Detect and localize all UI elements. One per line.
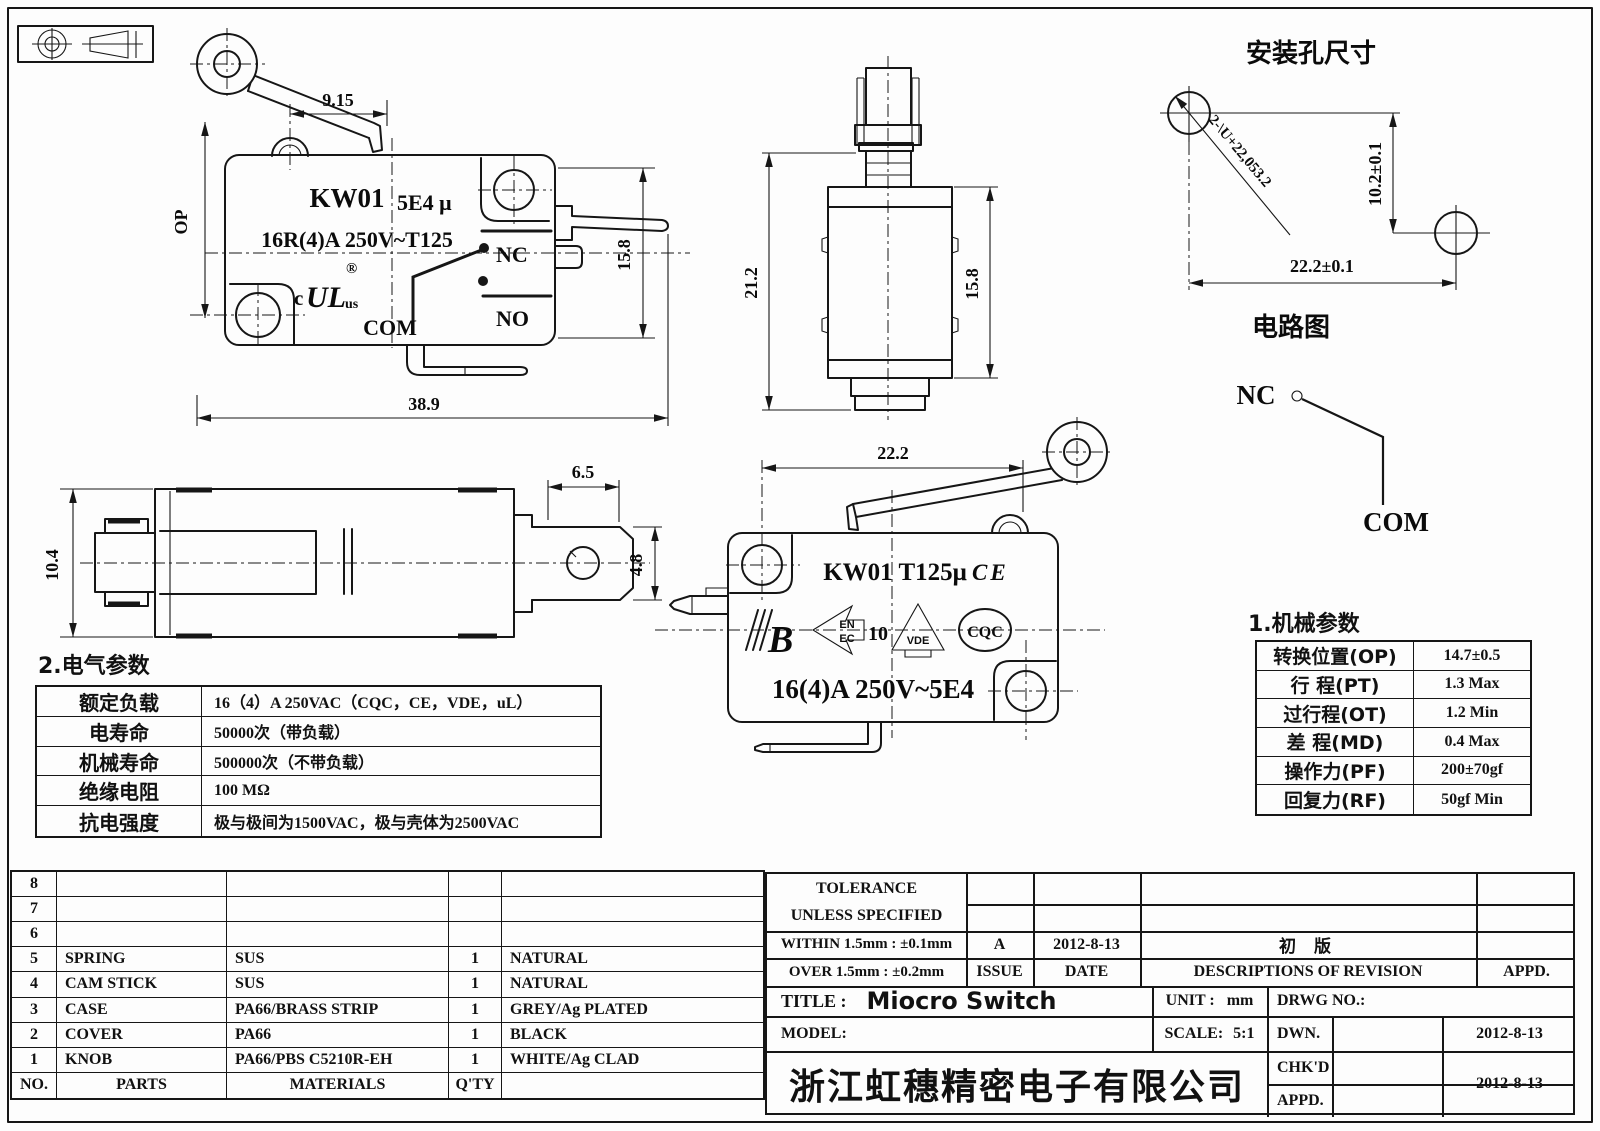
parts-header-no: NO.: [12, 1073, 57, 1098]
mech-value: 1.3 Max: [1414, 671, 1530, 700]
bottom-model-label: KW01 T125μ: [823, 559, 967, 586]
part-material: PA66: [227, 1023, 449, 1048]
tolerance-over: OVER 1.5mm : ±0.2mm: [767, 958, 966, 986]
side-view: KW01 5E4 μ 16R(4)A 250V~T125 ® c UL us C…: [171, 28, 690, 426]
part-material: PA66/PBS C5210R-EH: [227, 1048, 449, 1073]
parts-header-color: [502, 1073, 765, 1098]
front-view: 21.2 15.8: [741, 56, 998, 420]
part-qty: [449, 897, 502, 922]
mech-label: 操作力(PF): [1257, 757, 1414, 786]
title-block: TOLERANCE UNLESS SPECIFIED WITHIN 1.5mm …: [765, 872, 1575, 1115]
dim-6-5: 6.5: [572, 462, 595, 482]
circuit-diagram: 电路图 NC COM: [1237, 312, 1429, 537]
dim-22-2-mount: 22.2±0.1: [1290, 256, 1354, 276]
appd-header: APPD.: [1476, 958, 1577, 986]
nc-label: NC: [496, 242, 528, 267]
dim-38-9: 38.9: [408, 394, 440, 414]
elec-table: 额定负载16（4）A 250VAC（CQC，CE，VDE，uL） 电寿命5000…: [35, 685, 602, 838]
tolerance-label-1: TOLERANCE: [767, 876, 966, 902]
part-no: 6: [12, 922, 57, 947]
unit-value: mm: [1227, 992, 1254, 1010]
mech-label: 转换位置(OP): [1257, 642, 1414, 671]
b-mark-icon: B: [767, 619, 793, 661]
part-qty: [449, 872, 502, 897]
mech-value: 50gf Min: [1414, 785, 1530, 814]
part-material: [227, 897, 449, 922]
drawing-title: Miocro Switch: [867, 987, 1057, 1015]
com-label: COM: [363, 315, 417, 340]
elec-label: 额定负载: [37, 687, 202, 717]
part-no: 3: [12, 998, 57, 1023]
elec-label: 绝缘电阻: [37, 776, 202, 806]
elec-value: 极与极间为1500VAC，极与壳体为2500VAC: [202, 806, 600, 836]
cqc-mark-icon: CQC: [967, 624, 1003, 641]
mech-value: 1.2 Min: [1414, 699, 1530, 728]
part-name: KNOB: [57, 1048, 227, 1073]
vde-mark-icon: VDE: [907, 635, 930, 647]
issue-label: ISSUE: [966, 958, 1033, 986]
dim-21-2: 21.2: [741, 267, 761, 299]
part-color: [502, 897, 765, 922]
part-name: SPRING: [57, 947, 227, 972]
part-no: 8: [12, 872, 57, 897]
parts-table: 8 7 6 5SPRINGSUS1NATURAL 4CAM STICKSUS1N…: [10, 870, 765, 1100]
dim-15-8-front: 15.8: [962, 268, 982, 300]
part-qty: 1: [449, 1023, 502, 1048]
part-qty: [449, 922, 502, 947]
part-color: NATURAL: [502, 947, 765, 972]
appd-label: APPD.: [1277, 1084, 1332, 1117]
elec-value: 500000次（不带负载）: [202, 747, 600, 777]
mounting-hole-diagram: 安装孔尺寸 10.2±0.1 22.2±0.1 2-\U+22,053.2: [1160, 39, 1490, 290]
date-label: DATE: [1033, 958, 1140, 986]
revision-header: DESCRIPTIONS OF REVISION: [1140, 958, 1476, 986]
side-rating-label: 16R(4)A 250V~T125: [261, 227, 453, 252]
drawing-sheet: KW01 5E4 μ 16R(4)A 250V~T125 ® c UL us C…: [0, 0, 1600, 1131]
dwn-date: 2012-8-13: [1442, 1016, 1577, 1051]
part-qty: 1: [449, 972, 502, 997]
part-color: WHITE/Ag CLAD: [502, 1048, 765, 1073]
part-qty: 1: [449, 998, 502, 1023]
elec-value: 50000次（带负载）: [202, 717, 600, 747]
parts-header-materials: MATERIALS: [227, 1073, 449, 1098]
model-label: MODEL:: [781, 1016, 1152, 1051]
chkd-date: 2012-8-13: [1442, 1051, 1577, 1117]
part-no: 1: [12, 1048, 57, 1073]
bottom-rating-label: 16(4)A 250V~5E4: [772, 674, 974, 704]
part-material: [227, 872, 449, 897]
registered-icon: ®: [346, 261, 357, 277]
ce-mark-icon: CE: [972, 560, 1009, 585]
dim-9-15: 9.15: [322, 90, 354, 110]
part-no: 2: [12, 1023, 57, 1048]
dim-10-4: 10.4: [42, 549, 62, 581]
part-color: GREY/Ag PLATED: [502, 998, 765, 1023]
side-model-label: KW01: [309, 183, 384, 213]
part-name: [57, 897, 227, 922]
scale-label: SCALE:: [1164, 1025, 1223, 1043]
elec-value: 100 MΩ: [202, 776, 600, 806]
mech-label: 差 程(MD): [1257, 728, 1414, 757]
mounting-title: 安装孔尺寸: [1246, 39, 1376, 69]
part-material: SUS: [227, 972, 449, 997]
elec-label: 机械寿命: [37, 747, 202, 777]
part-name: CASE: [57, 998, 227, 1023]
part-no: 5: [12, 947, 57, 972]
company-name: 浙江虹穗精密电子有限公司: [767, 1051, 1267, 1117]
dim-10-2: 10.2±0.1: [1365, 142, 1385, 206]
projection-symbol-icon: [18, 26, 153, 62]
issue-value: A: [966, 931, 1033, 958]
part-color: [502, 922, 765, 947]
mech-label: 回复力(RF): [1257, 785, 1414, 814]
circuit-com-label: COM: [1363, 507, 1429, 537]
tolerance-within: WITHIN 1.5mm : ±0.1mm: [767, 931, 966, 958]
dim-op: OP: [171, 209, 191, 234]
part-qty: 1: [449, 1048, 502, 1073]
part-name: CAM STICK: [57, 972, 227, 997]
dwn-label: DWN.: [1277, 1016, 1332, 1051]
dim-15-8-side: 15.8: [614, 239, 634, 271]
circuit-nc-label: NC: [1237, 380, 1276, 410]
mech-value: 14.7±0.5: [1414, 642, 1530, 671]
chkd-label: CHK'D: [1277, 1051, 1332, 1084]
unit-label: UNIT :: [1166, 992, 1215, 1010]
top-view: 10.4 6.5 4.8: [42, 462, 662, 637]
elec-label: 抗电强度: [37, 806, 202, 836]
part-color: NATURAL: [502, 972, 765, 997]
part-qty: 1: [449, 947, 502, 972]
drwg-no-label: DRWG NO.:: [1277, 986, 1577, 1016]
part-material: PA66/BRASS STRIP: [227, 998, 449, 1023]
elec-value: 16（4）A 250VAC（CQC，CE，VDE，uL）: [202, 687, 600, 717]
part-name: COVER: [57, 1023, 227, 1048]
bottom-view: KW01 T125μ CE B EN EC 10 VDE CQC 16(4)A …: [655, 417, 1112, 752]
elec-table-title: 2.电气参数: [38, 648, 150, 680]
part-material: SUS: [227, 947, 449, 972]
ul-logo-icon: UL: [306, 281, 346, 314]
mech-value: 200±70gf: [1414, 757, 1530, 786]
part-material: [227, 922, 449, 947]
enec-top-label: EN: [839, 619, 854, 631]
enec-bottom-label: EC: [839, 633, 854, 645]
part-no: 7: [12, 897, 57, 922]
logo-10-label: 10: [868, 623, 888, 645]
mech-value: 0.4 Max: [1414, 728, 1530, 757]
revision-date: 2012-8-13: [1033, 931, 1140, 958]
part-no: 4: [12, 972, 57, 997]
part-color: [502, 872, 765, 897]
dim-4-8: 4.8: [626, 554, 646, 577]
mech-table: 转换位置(OP)14.7±0.5 行 程(PT)1.3 Max 过行程(OT)1…: [1255, 640, 1532, 816]
part-name: [57, 922, 227, 947]
mech-table-title: 1.机械参数: [1248, 606, 1360, 638]
revision-description: 初 版: [1140, 931, 1476, 958]
hole-callout-label: 2-\U+22,053.2: [1205, 112, 1274, 190]
ul-us-label: us: [345, 297, 359, 312]
side-code-label: 5E4 μ: [397, 190, 452, 215]
no-label: NO: [496, 306, 529, 331]
title-label: TITLE :: [781, 991, 847, 1012]
ul-c-label: c: [294, 286, 303, 310]
parts-header-parts: PARTS: [57, 1073, 227, 1098]
parts-header-qty: Q'TY: [449, 1073, 502, 1098]
scale-value: 5:1: [1233, 1025, 1254, 1043]
circuit-title: 电路图: [1252, 312, 1330, 343]
part-name: [57, 872, 227, 897]
part-color: BLACK: [502, 1023, 765, 1048]
tolerance-label-2: UNLESS SPECIFIED: [767, 903, 966, 929]
mech-label: 过行程(OT): [1257, 699, 1414, 728]
dim-22-2: 22.2: [877, 443, 909, 463]
mech-label: 行 程(PT): [1257, 671, 1414, 700]
elec-label: 电寿命: [37, 717, 202, 747]
